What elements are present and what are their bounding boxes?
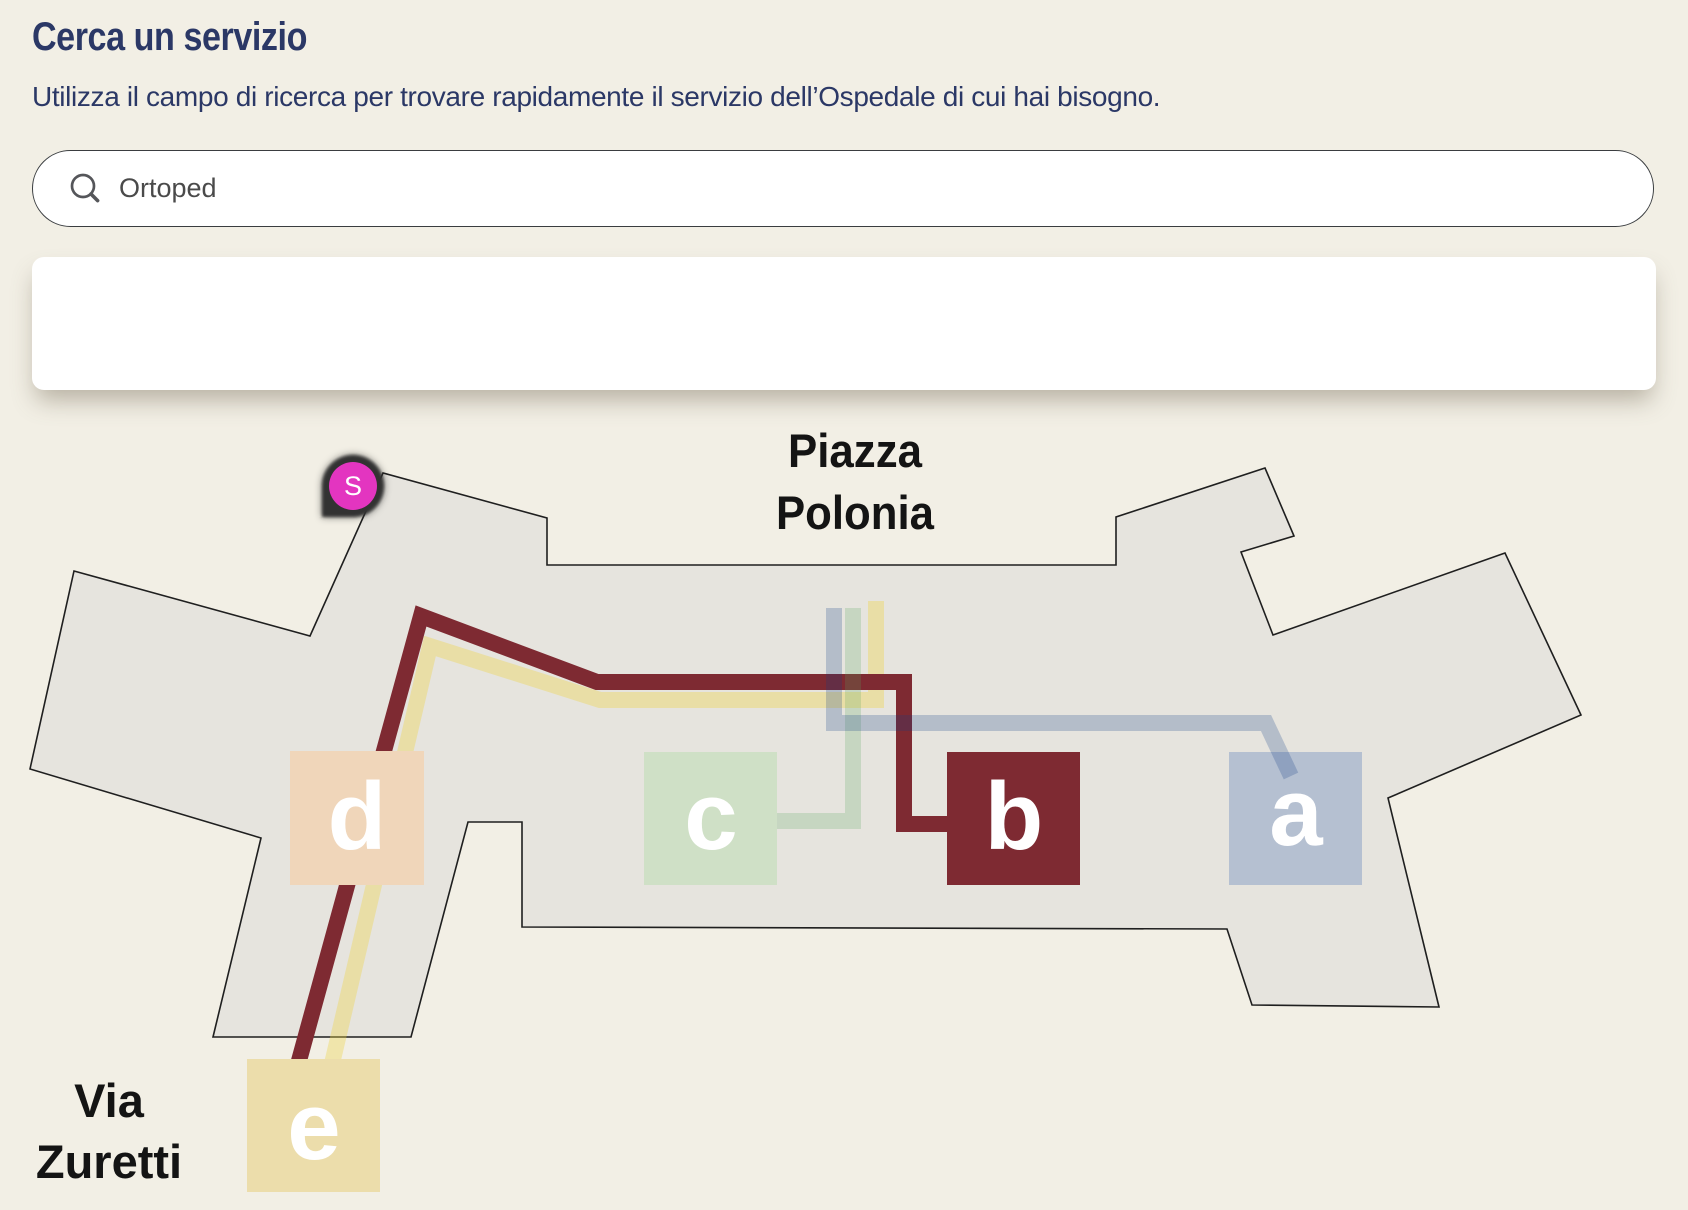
- svg-text:a: a: [1269, 759, 1323, 866]
- svg-text:Zuretti: Zuretti: [36, 1135, 182, 1188]
- svg-text:Via: Via: [74, 1074, 145, 1127]
- svg-text:e: e: [287, 1073, 340, 1180]
- svg-text:Piazza: Piazza: [788, 424, 923, 477]
- svg-text:Polonia: Polonia: [776, 486, 935, 539]
- svg-text:d: d: [328, 763, 387, 870]
- svg-text:c: c: [684, 763, 737, 870]
- svg-text:S: S: [344, 471, 362, 501]
- svg-text:b: b: [985, 763, 1044, 870]
